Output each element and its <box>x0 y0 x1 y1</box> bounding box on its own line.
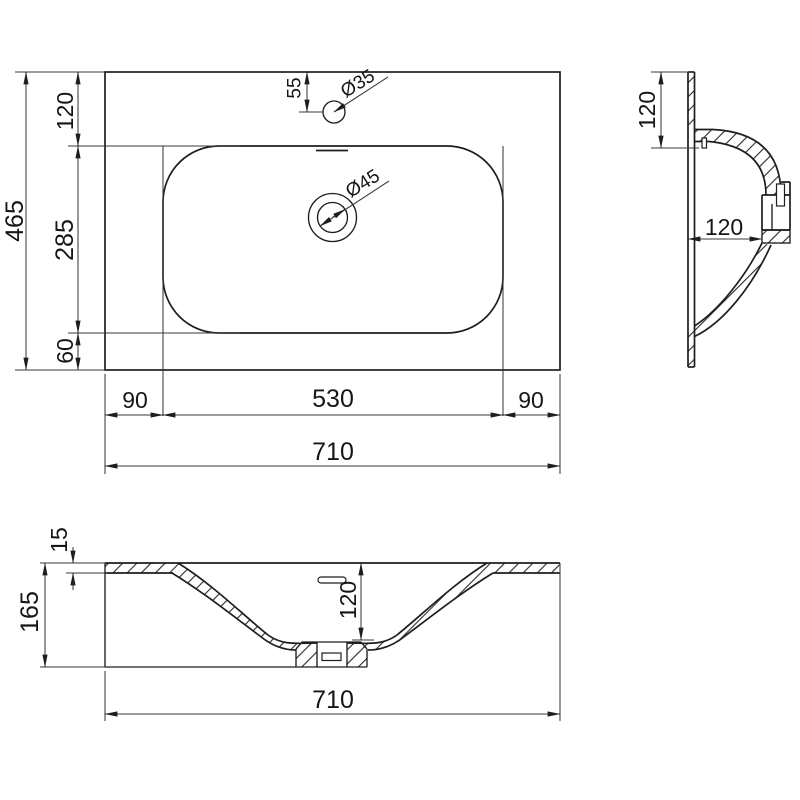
side-wall-hatch-top <box>688 72 695 130</box>
front-left-shell-hatch <box>105 563 317 650</box>
front-drain-opening <box>322 653 341 661</box>
top-view-dimension-lines <box>26 72 560 466</box>
washbasin-technical-drawing: 465 120 285 60 90 530 90 710 55 Ø35 Ø45 <box>0 0 800 800</box>
front-view: 15 165 120 710 <box>16 527 560 721</box>
dim-label-overall-depth: 465 <box>1 200 29 242</box>
countertop-outline <box>105 72 560 370</box>
side-wall-hatch-bottom <box>688 330 695 367</box>
side-view: 120 120 <box>634 72 790 367</box>
leader-drain-dia-arrow2 <box>333 209 346 217</box>
dim-label-basin-depth: 285 <box>51 219 79 261</box>
dim-label-drain-offset: 120 <box>705 214 743 240</box>
dim-label-faucet-offset: 55 <box>285 77 306 98</box>
drawing-sheet: 465 120 285 60 90 530 90 710 55 Ø35 Ø45 <box>0 0 800 800</box>
side-drain-flange-hatch <box>762 230 790 243</box>
dim-label-overall-height: 165 <box>16 591 44 633</box>
top-view: 465 120 285 60 90 530 90 710 55 Ø35 Ø45 <box>1 66 560 474</box>
front-bowl-inner-right <box>347 563 487 643</box>
front-right-shell-hatch <box>347 563 560 650</box>
front-bowl-inner-left <box>178 563 317 643</box>
dim-label-drain-dia: Ø45 <box>342 166 384 203</box>
side-overflow-slot <box>702 138 707 148</box>
dim-label-back-margin: 120 <box>52 92 78 130</box>
dim-label-front-margin: 60 <box>52 338 78 364</box>
side-drain-slot <box>777 184 785 206</box>
dim-label-basin-width: 530 <box>312 385 354 413</box>
dim-label-overall-width: 710 <box>312 438 354 466</box>
dim-label-edge-thickness: 15 <box>46 527 72 553</box>
dim-label-rim-height: 120 <box>634 91 660 129</box>
top-view-extension-lines <box>15 72 560 474</box>
dim-label-bowl-depth: 120 <box>335 581 361 619</box>
dim-label-right-margin: 90 <box>518 387 544 413</box>
dim-label-front-overall-width: 710 <box>312 686 354 714</box>
basin-bowl-outline <box>163 146 503 333</box>
side-rim-hatch <box>695 130 782 196</box>
dim-label-left-margin: 90 <box>122 387 148 413</box>
front-view-outline <box>105 563 560 667</box>
side-bowl-bottom-outer <box>695 243 763 326</box>
